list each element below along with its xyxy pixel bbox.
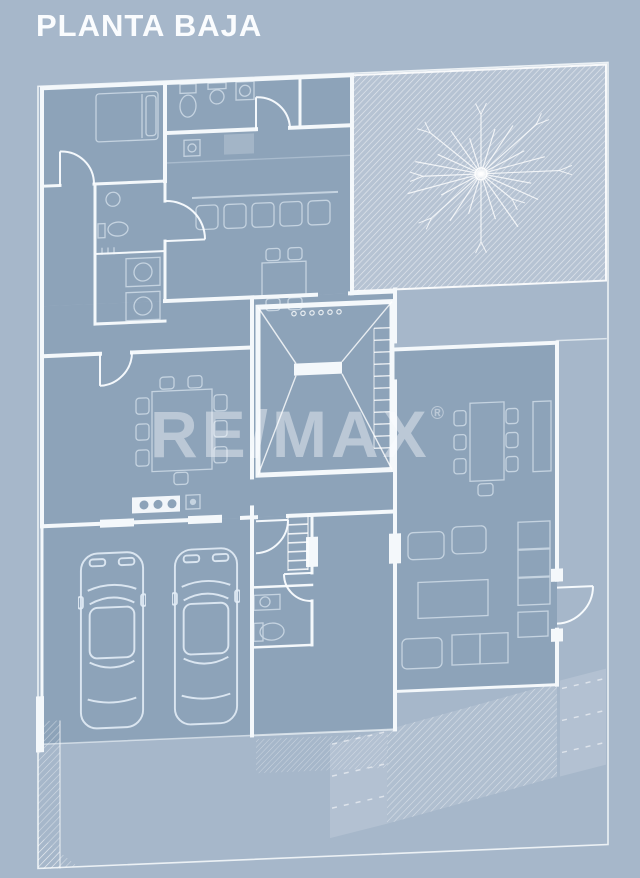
stove-icon (224, 133, 254, 154)
garden-area (352, 65, 606, 292)
page-title: PLANTA BAJA (36, 8, 262, 44)
floor-plan-page: PLANTA BAJA (0, 0, 640, 878)
floor-plan-svg (0, 58, 640, 878)
bbq-counter-icon (132, 495, 180, 513)
